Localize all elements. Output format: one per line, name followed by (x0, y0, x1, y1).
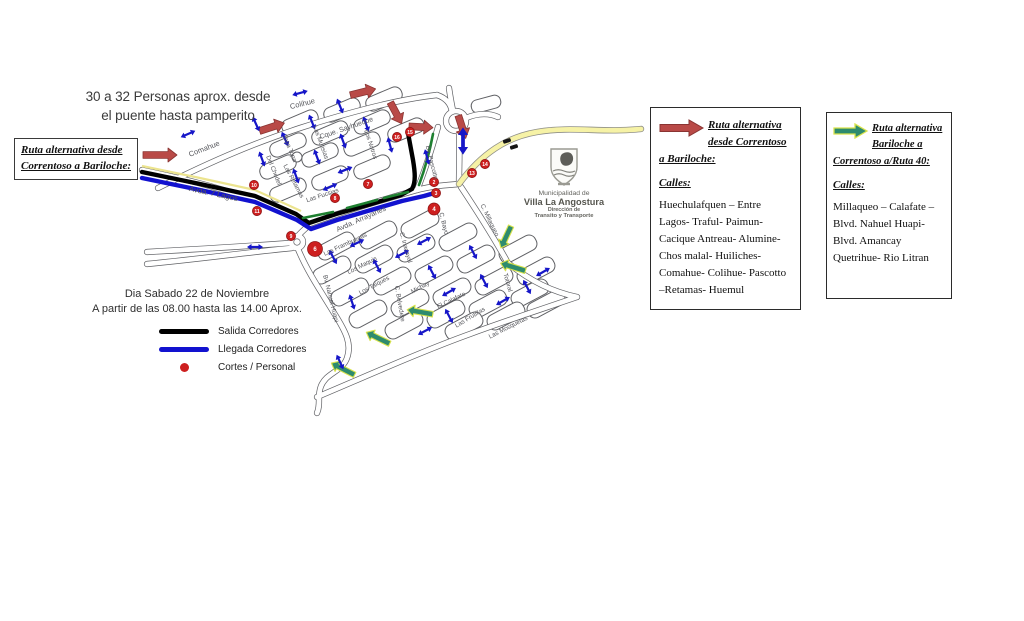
top-note-line2: el puente hasta pamperito (57, 106, 299, 125)
legend-row-cortes: Cortes / Personal (158, 358, 328, 376)
legend-label: Salida Corredores (218, 326, 299, 337)
street-label: Comahue (187, 139, 221, 159)
legend-label: Cortes / Personal (218, 362, 295, 373)
svg-text:16: 16 (394, 135, 400, 141)
corte-marker: 9 (286, 231, 295, 240)
info-box-heading: Ruta alternativa desde Correntoso a Bari… (659, 117, 792, 168)
svg-text:13: 13 (469, 171, 475, 177)
left-box-line2: Correntoso a Bariloche: (21, 159, 131, 175)
two-way-street-arrow (179, 128, 196, 140)
corte-marker: 14 (480, 159, 489, 168)
corte-marker: 6 (308, 242, 323, 257)
info-box-bariloche-a-correntoso: Ruta alternativa Bariloche a Correntoso … (826, 112, 952, 299)
streets-list: Huechulafquen – Entre Lagos- Traful- Pai… (659, 197, 792, 299)
alt-route-left-box: Ruta alternativa desde Correntoso a Bari… (14, 138, 138, 180)
corte-marker: 10 (249, 180, 258, 189)
municipality-logo: Municipalidad de Villa La Angostura Dire… (520, 147, 608, 219)
salida-line-swatch (159, 329, 209, 334)
legend-row-salida: Salida Corredores (158, 322, 328, 340)
info-box-heading: Ruta alternativa Bariloche a Correntoso … (833, 121, 945, 170)
corte-marker: 11 (252, 206, 261, 215)
svg-text:2: 2 (433, 180, 436, 186)
info-box-correntoso-a-bariloche: Ruta alternativa desde Correntoso a Bari… (650, 107, 801, 310)
svg-text:15: 15 (407, 130, 413, 136)
logo-line4: Transito y Transporte (520, 213, 608, 219)
calles-label: Calles: (659, 177, 792, 189)
logo-line2: Villa La Angostura (520, 197, 608, 207)
left-box-line1: Ruta alternativa desde (21, 143, 131, 159)
top-note-line1: 30 a 32 Personas aprox. desde (57, 87, 299, 106)
svg-text:7: 7 (367, 182, 370, 188)
car-icon (510, 144, 519, 150)
svg-text:8: 8 (334, 196, 337, 202)
svg-text:10: 10 (251, 183, 257, 189)
calles-label: Calles: (833, 179, 945, 191)
top-note: 30 a 32 Personas aprox. desde el puente … (57, 87, 299, 125)
date-line1: Dia Sabado 22 de Noviembre (88, 287, 306, 302)
street-label: C. Bayo (437, 212, 449, 236)
streets-list: Millaqueo – Calafate – Blvd. Nahuel Huap… (833, 199, 945, 267)
traffic-operative-map-page: 2346789101113141516ComahueColihueCque. S… (0, 0, 1024, 621)
svg-text:3: 3 (435, 191, 438, 197)
legend: Salida Corredores Llegada Corredores Cor… (158, 322, 328, 376)
svg-text:9: 9 (290, 234, 293, 240)
date-note: Dia Sabado 22 de Noviembre A partir de l… (88, 287, 306, 317)
logo-line1: Municipalidad de (520, 190, 608, 197)
date-line2: A partir de las 08.00 hasta las 14.00 Ap… (88, 302, 306, 317)
svg-text:11: 11 (254, 209, 260, 215)
corte-marker: 3 (431, 188, 440, 197)
svg-text:14: 14 (482, 162, 488, 168)
alt-route-red-arrow (143, 148, 177, 162)
legend-row-llegada: Llegada Corredores (158, 340, 328, 358)
corte-marker: 13 (467, 168, 476, 177)
corte-dot-swatch (180, 363, 189, 372)
corte-marker: 7 (363, 179, 372, 188)
corte-marker: 16 (392, 132, 401, 141)
red-route-arrow-icon (659, 119, 705, 137)
corte-marker: 15 (405, 127, 414, 136)
llegada-line-swatch (159, 347, 209, 352)
municipality-crest-icon (547, 147, 581, 189)
legend-label: Llegada Corredores (218, 344, 306, 355)
green-route-arrow-icon (833, 123, 869, 139)
